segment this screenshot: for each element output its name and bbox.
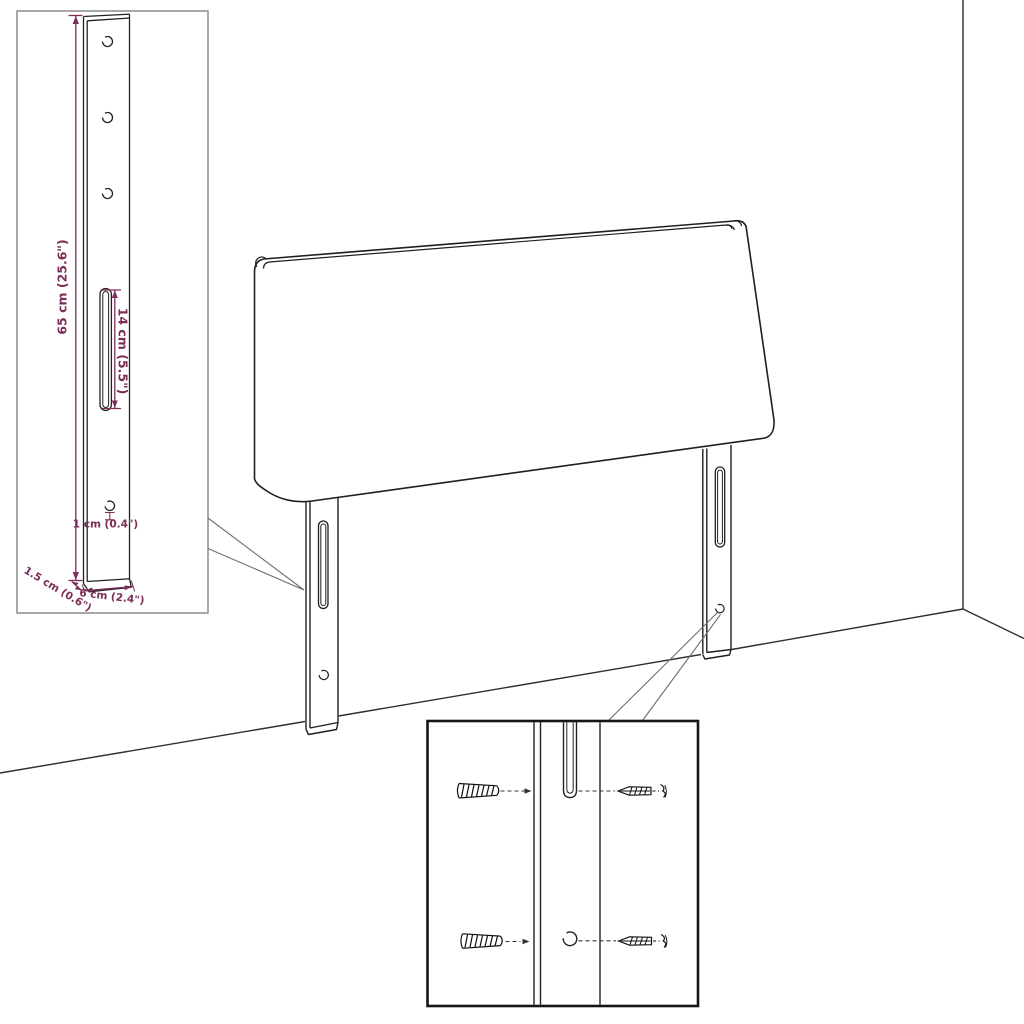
dimension-label-leg-height: 65 cm (25.6") [55, 239, 70, 334]
headboard-outline [255, 221, 775, 502]
floor-wall-line-right [963, 609, 1024, 639]
dimension-label-hole-diameter: 1 cm (0.4") [73, 519, 138, 531]
headboard-panel [255, 221, 775, 502]
assembly-diagram: 65 cm (25.6") 14 cm (5.5") 1 cm (0.4") 1… [0, 0, 1024, 1024]
mount-detail-inset-border [428, 721, 699, 1006]
floor-wall-line [339, 655, 702, 717]
mount-detail-inset [428, 721, 699, 1006]
leg-detail-callout-lines [208, 518, 304, 590]
headboard-left-leg [305, 498, 339, 736]
headboard-right-leg [702, 445, 732, 660]
floor-wall-line [0, 722, 305, 774]
dimension-label-slot-length: 14 cm (5.5") [116, 308, 131, 395]
floor-wall-line [732, 609, 964, 650]
